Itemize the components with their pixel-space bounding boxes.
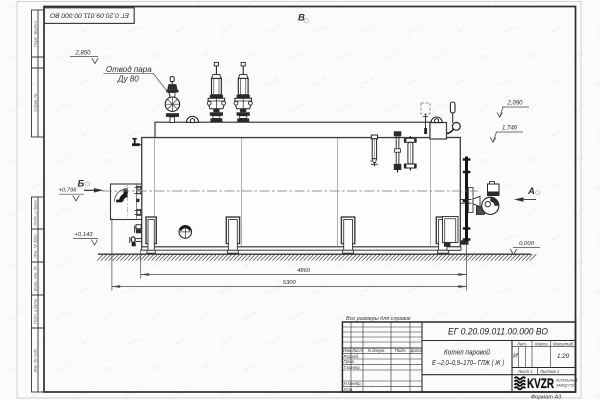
svg-text:Масса: Масса (535, 341, 548, 346)
svg-text:Ду 80: Ду 80 (117, 75, 139, 84)
svg-text:KVZR: KVZR (527, 375, 554, 391)
svg-text:Б: Б (78, 179, 85, 190)
svg-text:1,746: 1,746 (502, 126, 518, 132)
svg-text:Утв.: Утв. (344, 387, 354, 392)
svg-text:ЗАВОД РЭП: ЗАВОД РЭП (556, 384, 576, 388)
svg-text:Все размеры для справок: Все размеры для справок (346, 316, 411, 322)
svg-text:Котел паровой: Котел паровой (444, 348, 491, 357)
svg-text:0,000: 0,000 (519, 241, 534, 247)
svg-text:Подп.: Подп. (395, 348, 406, 353)
svg-text:Е –2,0–0,9–170– ГЛЖ ( Ж ): Е –2,0–0,9–170– ГЛЖ ( Ж ) (432, 360, 504, 367)
svg-text:2,850: 2,850 (74, 51, 91, 57)
svg-text:Масштаб: Масштаб (553, 341, 574, 346)
svg-text:Т.контр.: Т.контр. (344, 365, 361, 370)
svg-text:КОТЕЛЬНЫЙ: КОТЕЛЬНЫЙ (556, 379, 578, 383)
svg-text:N докум.: N докум. (368, 348, 385, 353)
svg-text:И: И (513, 353, 518, 360)
svg-text:Инв. № подл.: Инв. № подл. (32, 348, 37, 373)
svg-text:4860: 4860 (297, 268, 311, 274)
svg-text:Инв. № дубл.: Инв. № дубл. (32, 233, 37, 258)
svg-text:В: В (298, 13, 305, 24)
svg-text:Отвод пара: Отвод пара (106, 65, 152, 74)
svg-text:Справ. №: Справ. № (32, 93, 37, 112)
svg-text:Перв. примен.: Перв. примен. (32, 20, 37, 47)
svg-text:+0,796: +0,796 (58, 188, 77, 194)
svg-text:А: А (527, 186, 535, 197)
svg-text:1:20: 1:20 (557, 353, 570, 360)
svg-text:5300: 5300 (283, 280, 297, 286)
svg-text:ЕГ 0.20.09.011.00.000 ВО: ЕГ 0.20.09.011.00.000 ВО (50, 11, 129, 18)
svg-text:Подп. и дата: Подп. и дата (32, 200, 37, 226)
svg-text:Лит.: Лит. (516, 341, 527, 346)
svg-text:Формат А3: Формат А3 (531, 394, 562, 400)
svg-text:Изм.Лист: Изм.Лист (343, 348, 364, 353)
svg-text:Лист 1: Лист 1 (517, 369, 533, 374)
svg-text:Н.контр.: Н.контр. (344, 381, 362, 386)
svg-text:Взам. инв. №: Взам. инв. № (32, 265, 37, 290)
svg-text:ЕГ 0.20.09.011.00.000 ВО: ЕГ 0.20.09.011.00.000 ВО (448, 326, 549, 337)
svg-text:2,090: 2,090 (506, 101, 523, 107)
svg-text:+0,143: +0,143 (74, 232, 93, 238)
svg-text:Разраб.: Разраб. (344, 354, 360, 359)
svg-text:Листов 2: Листов 2 (539, 369, 560, 374)
svg-text:Пров.: Пров. (344, 359, 355, 364)
svg-text:Дата: Дата (409, 348, 422, 353)
svg-text:Подп. и дата: Подп. и дата (32, 298, 37, 324)
